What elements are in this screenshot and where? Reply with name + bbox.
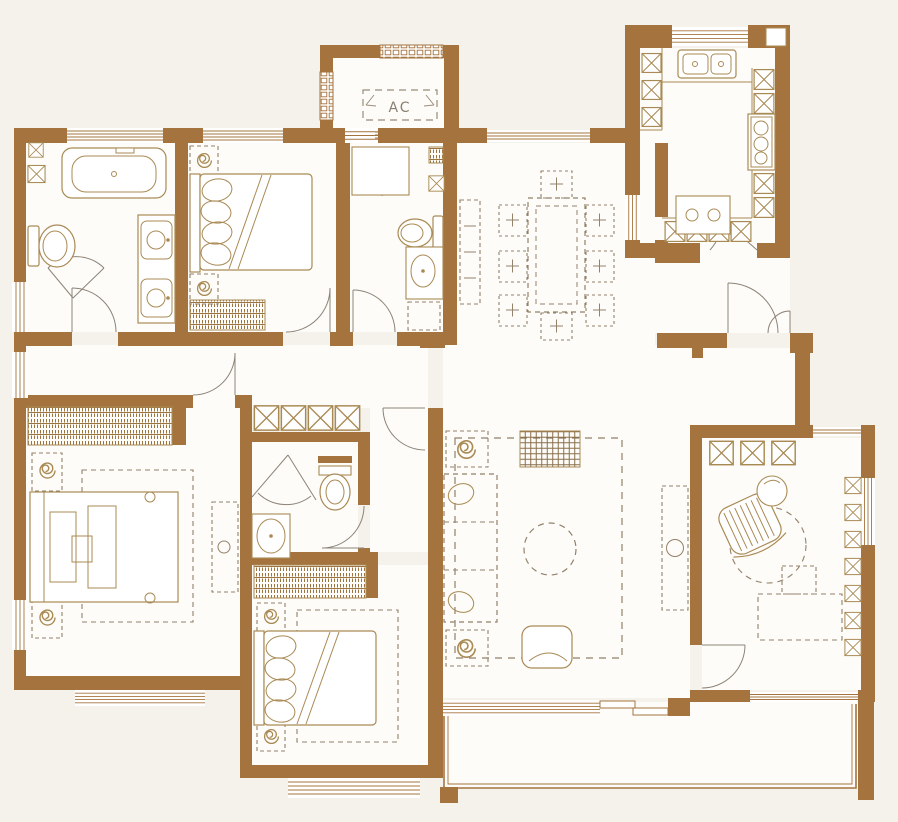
entry-wall [657,333,727,348]
wall [240,395,252,775]
kitchen-table [676,196,730,234]
vent-window [380,45,443,58]
wall [861,545,875,702]
toilet-shelf [318,456,352,463]
study-floor [702,438,861,690]
wall [320,58,333,72]
wall [443,45,459,58]
wall [378,128,460,143]
wall [625,25,640,195]
wall [861,425,875,438]
flue-box [766,28,786,46]
bathtub-faucet [116,148,134,153]
shaft-box [429,147,443,163]
laundry-cabinet [254,406,278,430]
toilet-bowl [320,474,350,510]
wall [14,128,26,282]
wall [14,676,252,690]
floorplan-svg: AC [0,0,898,822]
wall [690,438,702,645]
balcony-window [443,700,600,716]
toilet-tank [28,226,39,266]
bed-headboard [254,631,264,725]
bay-window [75,690,205,706]
wall [240,765,440,778]
wall [657,243,700,263]
wall [428,408,443,778]
cabinet-cell [731,222,751,242]
toilet-bowl [398,219,432,247]
cabinet-cell [642,81,661,100]
wall [625,25,672,48]
vanity-faucet [269,534,273,538]
ac-balcony-floor [333,58,444,128]
bed-headboard [190,174,200,272]
wall [858,690,874,800]
cabinet-cell [754,70,774,90]
wall [118,332,283,346]
wall [443,143,457,345]
shower-tray [352,147,409,195]
cabinet-cell [642,54,661,73]
stove [748,114,775,170]
bookshelf-cell [845,531,861,547]
wall [14,128,67,143]
cabinet-cell [642,108,661,127]
wall [366,565,378,598]
vanity-faucet [166,296,170,300]
bookshelf-cell [845,585,861,601]
bookshelf-cell [845,477,861,493]
window [672,27,748,46]
wall [655,143,668,217]
wall [14,398,26,600]
vanity-faucet [421,269,425,273]
vent-window [320,72,333,120]
wall [358,432,370,505]
wall [775,25,790,255]
hall-cabinet [741,441,764,464]
wall [440,787,458,803]
armchair [522,626,572,668]
wall [459,128,487,143]
cabinet-cell [754,94,774,114]
wall [668,698,690,716]
tv-cabinet [520,431,580,467]
inner-hall-floor [370,408,428,552]
bay-window [288,778,420,798]
cabinet-cell [754,198,774,218]
window [67,128,163,143]
hall-cabinet [772,441,795,464]
wall [240,432,370,442]
sliding-door-panel [633,708,668,715]
window [813,427,861,436]
laundry-cabinet [281,406,305,430]
wall [795,353,810,425]
bed [30,492,178,602]
bookshelf-cell [845,558,861,574]
wall [320,45,380,58]
water-heater [429,176,444,191]
vanity-faucet [166,238,170,242]
bed [264,631,376,725]
floorplan-page: AC [0,0,898,822]
toilet-tank [433,216,443,250]
wall [172,407,186,445]
wardrobe [190,300,265,330]
wardrobe [28,407,172,445]
hall-cabinet [710,441,733,464]
sliding-door-panel [600,701,635,708]
wall [692,348,703,358]
wall [790,333,813,353]
wall [336,143,350,332]
wall [420,332,445,348]
shaft-box [29,143,43,157]
wall [320,120,333,135]
wall [14,332,72,346]
wall [757,243,790,258]
wall [444,58,459,130]
bookshelf-cell [845,639,861,655]
wall [690,690,750,702]
shaft-box [28,165,45,182]
ac-unit-label: AC [388,100,411,116]
bookshelf-cell [845,504,861,520]
wardrobe [254,565,366,598]
wall [861,438,875,478]
laundry-cabinet [308,406,332,430]
wall [283,128,345,143]
bookshelf-cell [845,612,861,628]
wall [330,332,353,346]
wall [175,128,188,332]
cabinet-cell [754,174,774,194]
laundry-cabinet [335,406,359,430]
window [203,128,283,143]
wall [235,395,252,408]
wall [690,425,813,438]
wall [14,395,193,408]
wall [590,128,640,143]
